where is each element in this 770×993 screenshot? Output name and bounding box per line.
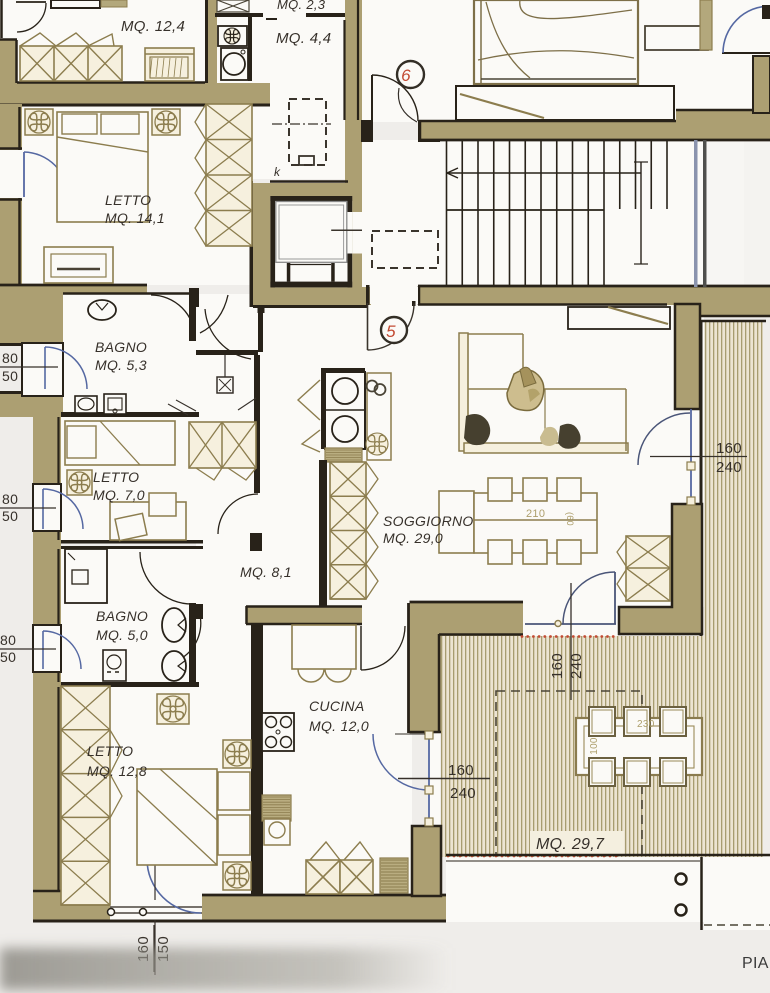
svg-text:80: 80	[2, 350, 18, 366]
svg-text:160: 160	[716, 440, 742, 457]
svg-text:CUCINA: CUCINA	[309, 698, 364, 714]
svg-text:MQ. 12,8: MQ. 12,8	[87, 763, 147, 779]
svg-text:100: 100	[589, 737, 600, 755]
svg-text:MQ. 5,0: MQ. 5,0	[96, 627, 148, 643]
svg-text:(60: (60	[565, 512, 575, 526]
svg-text:5: 5	[386, 322, 396, 341]
svg-text:MQ. 7,0: MQ. 7,0	[93, 487, 145, 503]
svg-text:MQ. 4,4: MQ. 4,4	[276, 30, 331, 47]
svg-text:LETTO: LETTO	[87, 743, 133, 759]
svg-text:240: 240	[450, 785, 476, 802]
svg-text:160: 160	[549, 653, 566, 679]
svg-text:MQ. 2,3: MQ. 2,3	[277, 0, 326, 12]
svg-text:MQ. 8,1: MQ. 8,1	[240, 564, 292, 580]
svg-text:MQ. 29,0: MQ. 29,0	[383, 530, 443, 546]
svg-text:LETTO: LETTO	[105, 192, 151, 208]
svg-text:MQ. 14,1: MQ. 14,1	[105, 210, 165, 226]
svg-text:50: 50	[2, 368, 18, 384]
svg-text:MQ. 5,3: MQ. 5,3	[95, 357, 147, 373]
svg-text:MQ. 12,0: MQ. 12,0	[309, 718, 369, 734]
svg-text:50: 50	[2, 508, 18, 524]
svg-text:PIA: PIA	[742, 955, 769, 972]
svg-text:160: 160	[448, 762, 474, 779]
svg-text:LETTO: LETTO	[93, 469, 139, 485]
svg-text:80: 80	[0, 632, 16, 648]
svg-text:k: k	[274, 165, 281, 179]
svg-text:BAGNO: BAGNO	[96, 608, 148, 624]
svg-text:6: 6	[401, 66, 411, 85]
svg-text:240: 240	[568, 653, 585, 679]
svg-text:240: 240	[716, 459, 742, 476]
svg-text:80: 80	[2, 491, 18, 507]
svg-text:50: 50	[0, 649, 16, 665]
svg-text:MQ. 29,7: MQ. 29,7	[536, 836, 605, 853]
svg-text:210: 210	[526, 508, 545, 520]
svg-text:BAGNO: BAGNO	[95, 339, 147, 355]
svg-text:MQ. 12,4: MQ. 12,4	[121, 18, 185, 35]
svg-text:SOGGIORNO: SOGGIORNO	[383, 513, 474, 529]
svg-text:230: 230	[637, 719, 655, 730]
